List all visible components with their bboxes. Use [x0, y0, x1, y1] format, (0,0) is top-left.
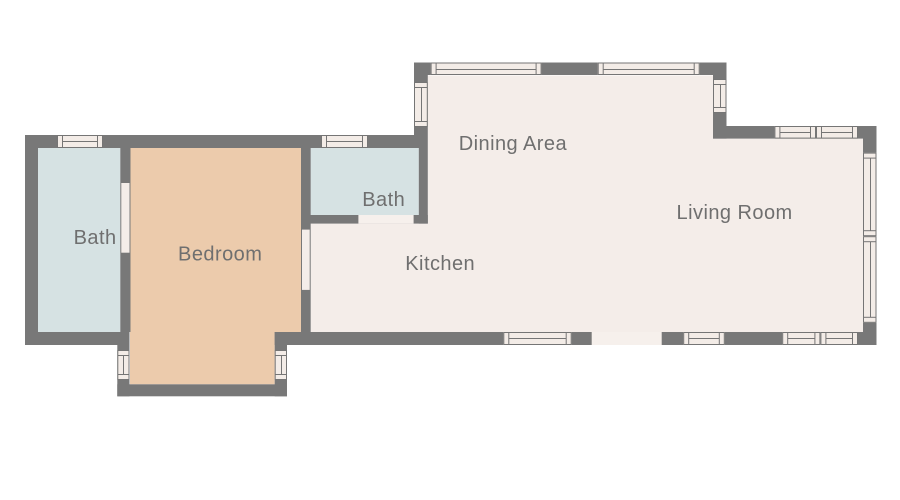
svg-text:Bath: Bath: [362, 189, 405, 211]
svg-text:Bath: Bath: [74, 227, 117, 249]
svg-text:Living Room: Living Room: [677, 202, 793, 224]
svg-text:Kitchen: Kitchen: [405, 253, 475, 275]
svg-text:Dining Area: Dining Area: [459, 133, 568, 155]
svg-text:Bedroom: Bedroom: [178, 243, 262, 265]
